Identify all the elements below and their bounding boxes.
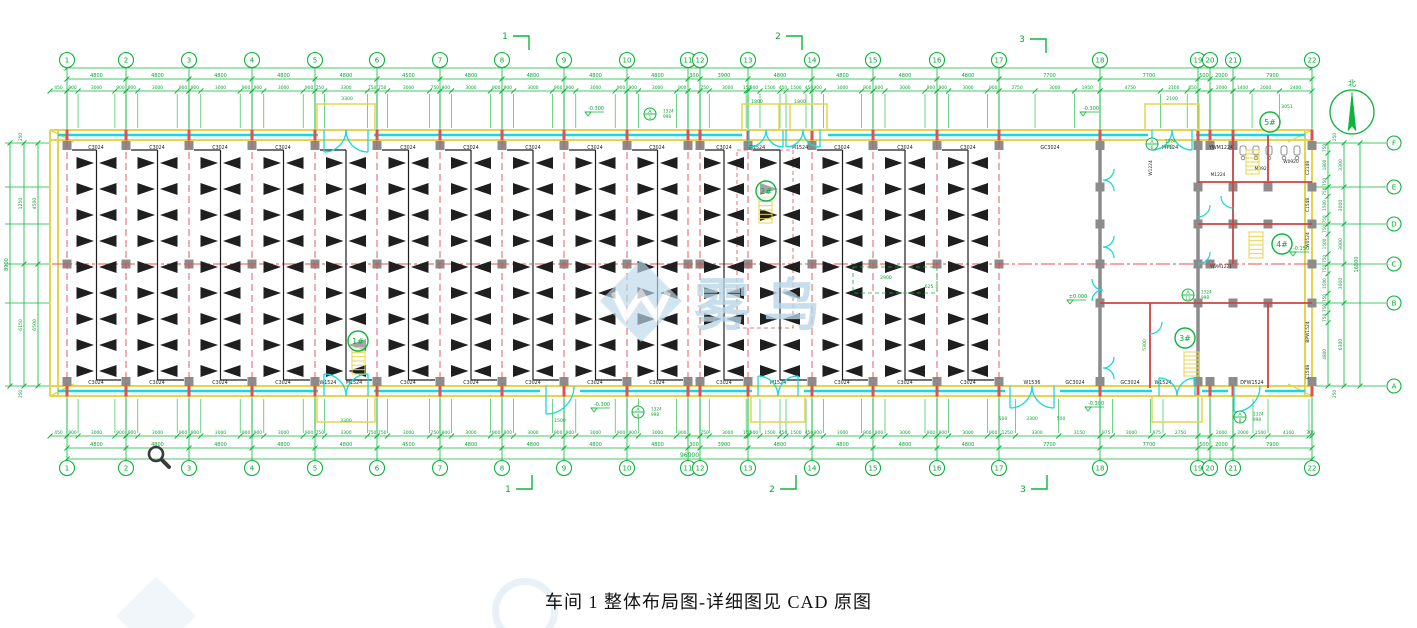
svg-text:4800: 4800: [340, 73, 353, 79]
svg-text:YWM1224: YWM1224: [1208, 145, 1233, 151]
svg-text:C3024: C3024: [212, 380, 228, 386]
svg-text:7900: 7900: [1266, 73, 1279, 79]
svg-text:2000: 2000: [1216, 430, 1227, 436]
svg-text:750: 750: [1322, 178, 1327, 186]
svg-text:500: 500: [1057, 416, 1066, 422]
svg-text:8: 8: [500, 465, 504, 473]
svg-text:7700: 7700: [1143, 73, 1156, 79]
svg-text:3300: 3300: [1338, 159, 1344, 171]
svg-text:1500: 1500: [1322, 200, 1327, 211]
svg-text:-0.300: -0.300: [594, 402, 610, 408]
svg-text:10: 10: [623, 465, 632, 473]
svg-text:900: 900: [305, 85, 314, 91]
svg-text:250: 250: [18, 390, 23, 398]
svg-text:9: 9: [562, 57, 566, 65]
svg-text:7: 7: [438, 57, 442, 65]
svg-text:900: 900: [116, 430, 125, 436]
svg-text:750: 750: [431, 85, 440, 91]
svg-text:900: 900: [750, 430, 759, 436]
svg-text:A: A: [1392, 383, 1397, 391]
magnifier-cursor: [146, 444, 172, 474]
svg-text:1500: 1500: [764, 85, 775, 91]
svg-text:900: 900: [989, 85, 998, 91]
svg-text:3300: 3300: [1026, 416, 1038, 422]
svg-text:2: 2: [775, 32, 781, 42]
svg-text:2: 2: [124, 57, 128, 65]
svg-text:6300: 6300: [1338, 339, 1344, 351]
svg-text:1400: 1400: [1237, 85, 1248, 91]
svg-text:2750: 2750: [1011, 85, 1022, 91]
svg-text:900: 900: [617, 430, 626, 436]
svg-text:C3024: C3024: [960, 380, 976, 386]
svg-text:11: 11: [684, 465, 693, 473]
svg-text:750: 750: [1322, 294, 1327, 302]
svg-text:C3024: C3024: [587, 380, 603, 386]
svg-text:C3024: C3024: [716, 380, 732, 386]
svg-text:4800: 4800: [589, 73, 602, 79]
svg-text:1500: 1500: [1322, 238, 1327, 249]
svg-text:DFW1524: DFW1524: [1240, 380, 1263, 386]
svg-text:300: 300: [689, 73, 699, 79]
svg-text:4800: 4800: [962, 73, 975, 79]
svg-text:3#: 3#: [1179, 334, 1191, 343]
svg-text:3000: 3000: [899, 430, 910, 436]
svg-text:C3024: C3024: [275, 380, 291, 386]
svg-text:750: 750: [1322, 265, 1327, 273]
svg-text:2000: 2000: [1216, 85, 1227, 91]
svg-text:900: 900: [492, 430, 501, 436]
svg-text:13: 13: [744, 465, 753, 473]
red-centerlines: [52, 141, 1310, 385]
svg-text:250: 250: [1332, 390, 1337, 398]
svg-text:900: 900: [989, 430, 998, 436]
svg-text:900: 900: [566, 430, 575, 436]
svg-text:900: 900: [492, 85, 501, 91]
svg-text:900: 900: [617, 85, 626, 91]
svg-text:2: 2: [769, 485, 775, 495]
svg-text:C1548: C1548: [1305, 365, 1311, 379]
svg-text:4800: 4800: [340, 442, 353, 448]
svg-text:8: 8: [1239, 418, 1242, 423]
svg-text:500: 500: [1199, 73, 1209, 79]
svg-text:4800: 4800: [277, 73, 290, 79]
svg-text:900: 900: [191, 430, 200, 436]
svg-text:-0.300: -0.300: [588, 106, 604, 112]
svg-text:2000: 2000: [1215, 73, 1228, 79]
svg-text:450: 450: [54, 85, 63, 91]
svg-text:3000: 3000: [652, 85, 663, 91]
svg-text:900: 900: [179, 85, 188, 91]
svg-text:M1524: M1524: [792, 145, 808, 151]
svg-text:96000: 96000: [680, 452, 699, 459]
svg-text:900: 900: [128, 430, 137, 436]
svg-text:3000: 3000: [278, 85, 289, 91]
svg-text:750: 750: [368, 85, 377, 91]
svg-text:5#: 5#: [1264, 118, 1276, 127]
svg-text:900: 900: [504, 85, 513, 91]
svg-text:750: 750: [1322, 313, 1327, 321]
svg-text:900: 900: [554, 85, 563, 91]
svg-text:4800: 4800: [1322, 349, 1327, 360]
svg-text:900: 900: [814, 430, 823, 436]
svg-text:750: 750: [316, 85, 325, 91]
svg-text:17: 17: [995, 465, 1004, 473]
svg-text:900: 900: [68, 430, 77, 436]
svg-text:13: 13: [744, 57, 753, 65]
svg-text:1: 1: [65, 465, 69, 473]
svg-text:4500: 4500: [402, 73, 415, 79]
svg-text:3000: 3000: [152, 85, 163, 91]
svg-text:998: 998: [1165, 144, 1173, 149]
svg-text:B: B: [1392, 300, 1397, 308]
svg-text:900: 900: [939, 430, 948, 436]
svg-text:4800: 4800: [899, 73, 912, 79]
svg-text:4800: 4800: [651, 73, 664, 79]
svg-text:975: 975: [1153, 430, 1162, 436]
svg-text:4: 4: [250, 465, 255, 473]
drawing-title: 车间 1 整体布局图-详细图见 CAD 原图: [0, 588, 1417, 614]
svg-text:C2148: C2148: [1305, 161, 1311, 175]
svg-text:C: C: [1392, 261, 1397, 269]
svg-text:2400: 2400: [1290, 85, 1301, 91]
svg-text:500: 500: [1199, 442, 1209, 448]
svg-text:E: E: [1392, 184, 1396, 192]
svg-text:900: 900: [875, 430, 884, 436]
svg-text:3000: 3000: [590, 430, 601, 436]
svg-text:14: 14: [808, 465, 817, 473]
svg-text:900: 900: [863, 430, 872, 436]
svg-text:-0.300: -0.300: [1088, 401, 1104, 407]
svg-text:18: 18: [1096, 57, 1105, 65]
svg-text:C3024: C3024: [400, 380, 416, 386]
svg-text:1324: 1324: [663, 109, 674, 114]
svg-text:C3024: C3024: [149, 380, 165, 386]
svg-text:2000: 2000: [1237, 430, 1248, 436]
svg-text:7700: 7700: [1043, 73, 1056, 79]
svg-text:4800: 4800: [151, 73, 164, 79]
svg-text:4800: 4800: [527, 73, 540, 79]
svg-text:250: 250: [1332, 133, 1337, 141]
svg-text:YWM1221: YWM1221: [1209, 264, 1232, 270]
svg-text:900: 900: [566, 85, 575, 91]
svg-text:1#: 1#: [352, 337, 364, 346]
svg-text:3000: 3000: [152, 430, 163, 436]
svg-text:7700: 7700: [1143, 442, 1156, 448]
svg-text:500: 500: [999, 416, 1008, 422]
svg-text:1500: 1500: [764, 430, 775, 436]
svg-text:900: 900: [629, 430, 638, 436]
svg-text:1500: 1500: [554, 418, 566, 424]
svg-text:3000: 3000: [722, 85, 733, 91]
svg-text:4#: 4#: [1276, 240, 1288, 249]
svg-text:625: 625: [925, 284, 934, 290]
svg-text:900: 900: [68, 85, 77, 91]
svg-text:3300: 3300: [340, 430, 351, 436]
svg-text:GC3024: GC3024: [1040, 145, 1059, 151]
svg-text:3000: 3000: [962, 430, 973, 436]
svg-text:19: 19: [1194, 465, 1203, 473]
svg-text:3000: 3000: [722, 430, 733, 436]
svg-text:1: 1: [502, 32, 508, 42]
svg-text:3300: 3300: [341, 96, 353, 102]
svg-text:22: 22: [1308, 57, 1317, 65]
svg-text:±0.000: ±0.000: [1069, 294, 1088, 300]
svg-text:4800: 4800: [527, 442, 540, 448]
svg-text:900: 900: [191, 85, 200, 91]
svg-text:4100: 4100: [1283, 430, 1294, 436]
svg-text:3000: 3000: [527, 85, 538, 91]
svg-text:450: 450: [54, 430, 63, 436]
svg-text:750: 750: [1322, 255, 1327, 263]
svg-text:998: 998: [651, 412, 659, 417]
svg-text:3900: 3900: [718, 442, 731, 448]
cad-drawing-page: 9600048004800480048004800450048004800480…: [0, 0, 1417, 628]
svg-text:750: 750: [378, 430, 387, 436]
svg-text:4800: 4800: [214, 73, 227, 79]
svg-text:2100: 2100: [1168, 85, 1179, 91]
svg-text:4800: 4800: [836, 442, 849, 448]
svg-text:1324: 1324: [651, 407, 662, 412]
svg-text:6: 6: [375, 57, 380, 65]
svg-text:750: 750: [1322, 225, 1327, 233]
svg-text:900: 900: [678, 430, 687, 436]
svg-text:9: 9: [562, 465, 566, 473]
svg-text:4800: 4800: [899, 442, 912, 448]
svg-text:3000: 3000: [91, 85, 102, 91]
svg-text:900: 900: [254, 85, 263, 91]
svg-text:21: 21: [1229, 57, 1238, 65]
svg-text:C3024: C3024: [649, 380, 665, 386]
svg-text:11: 11: [684, 57, 693, 65]
svg-text:4: 4: [250, 57, 255, 65]
svg-text:6: 6: [1151, 145, 1154, 150]
svg-text:900: 900: [927, 85, 936, 91]
svg-text:3000: 3000: [1338, 238, 1344, 250]
svg-text:750: 750: [700, 430, 709, 436]
svg-text:4800: 4800: [90, 442, 103, 448]
floor-plan-svg: 9600048004800480048004800450048004800480…: [0, 0, 1417, 628]
svg-text:20: 20: [1206, 57, 1215, 65]
svg-text:-0.300: -0.300: [1083, 106, 1099, 112]
svg-text:12: 12: [696, 465, 705, 473]
svg-text:6500: 6500: [32, 319, 38, 331]
svg-text:750: 750: [1322, 144, 1327, 152]
svg-text:750: 750: [700, 85, 709, 91]
svg-text:3300: 3300: [340, 85, 351, 91]
svg-text:900: 900: [442, 430, 451, 436]
svg-text:300: 300: [1306, 430, 1315, 436]
svg-text:900: 900: [678, 85, 687, 91]
svg-text:12: 12: [696, 57, 705, 65]
svg-text:900: 900: [116, 85, 125, 91]
svg-text:5: 5: [313, 57, 317, 65]
svg-text:4800: 4800: [465, 442, 478, 448]
svg-text:18: 18: [1096, 465, 1105, 473]
svg-text:3000: 3000: [837, 85, 848, 91]
svg-text:22: 22: [1308, 465, 1317, 473]
svg-text:900: 900: [504, 430, 513, 436]
svg-text:C3024: C3024: [525, 380, 541, 386]
svg-text:900: 900: [128, 85, 137, 91]
svg-text:4800: 4800: [651, 442, 664, 448]
svg-text:15: 15: [869, 465, 878, 473]
svg-text:15: 15: [869, 57, 878, 65]
svg-text:1500: 1500: [790, 430, 801, 436]
svg-text:GC3024: GC3024: [1065, 380, 1084, 386]
svg-text:1950: 1950: [1082, 85, 1093, 91]
svg-text:C3024: C3024: [834, 380, 850, 386]
svg-text:3000: 3000: [899, 85, 910, 91]
svg-text:4800: 4800: [962, 442, 975, 448]
svg-text:8: 8: [500, 57, 504, 65]
svg-text:16: 16: [933, 57, 942, 65]
svg-text:1800: 1800: [1322, 159, 1327, 170]
svg-text:1: 1: [649, 115, 652, 120]
svg-text:3300: 3300: [1031, 430, 1042, 436]
svg-text:3: 3: [187, 57, 191, 65]
svg-text:7700: 7700: [1043, 442, 1056, 448]
svg-text:W1224: W1224: [1148, 160, 1154, 176]
svg-text:GC3024: GC3024: [1120, 380, 1139, 386]
svg-text:北: 北: [1348, 79, 1356, 88]
svg-text:1250: 1250: [1002, 430, 1013, 436]
svg-text:5: 5: [313, 465, 317, 473]
svg-text:10: 10: [623, 57, 632, 65]
svg-text:900: 900: [927, 430, 936, 436]
svg-text:13: 13: [1185, 296, 1191, 301]
svg-text:3000: 3000: [91, 430, 102, 436]
svg-text:1: 1: [505, 485, 511, 495]
svg-text:4: 4: [637, 413, 640, 418]
svg-text:975: 975: [1102, 430, 1111, 436]
svg-text:19: 19: [1194, 57, 1203, 65]
svg-text:4500: 4500: [402, 442, 415, 448]
svg-text:3000: 3000: [527, 430, 538, 436]
svg-text:900: 900: [629, 85, 638, 91]
svg-text:4800: 4800: [589, 442, 602, 448]
svg-text:4800: 4800: [774, 73, 787, 79]
svg-text:850: 850: [1188, 85, 1197, 91]
svg-text:3900: 3900: [718, 73, 731, 79]
svg-text:300: 300: [689, 442, 699, 448]
svg-text:M1224: M1224: [1211, 172, 1226, 178]
svg-text:750: 750: [368, 430, 377, 436]
svg-text:C1548: C1548: [1305, 198, 1311, 212]
svg-text:2: 2: [124, 465, 128, 473]
svg-text:1324: 1324: [1253, 412, 1264, 417]
svg-text:3051: 3051: [1281, 104, 1293, 110]
svg-text:16: 16: [933, 465, 942, 473]
svg-text:4800: 4800: [774, 442, 787, 448]
svg-text:4800: 4800: [836, 73, 849, 79]
svg-text:1250: 1250: [18, 198, 24, 210]
svg-text:3000: 3000: [1338, 200, 1344, 212]
svg-text:17: 17: [995, 57, 1004, 65]
svg-text:750: 750: [1322, 187, 1327, 195]
svg-text:21: 21: [1229, 465, 1238, 473]
svg-text:3: 3: [1020, 485, 1026, 495]
svg-text:3000: 3000: [403, 430, 414, 436]
svg-text:C3024: C3024: [88, 380, 104, 386]
svg-text:3000: 3000: [465, 430, 476, 436]
svg-text:C3024: C3024: [463, 380, 479, 386]
svg-text:998: 998: [663, 114, 671, 119]
svg-text:8900: 8900: [4, 258, 10, 271]
svg-text:M1524: M1524: [770, 380, 786, 386]
svg-text:3: 3: [187, 465, 191, 473]
svg-text:4800: 4800: [214, 442, 227, 448]
svg-text:998: 998: [1253, 417, 1261, 422]
svg-text:1500: 1500: [790, 85, 801, 91]
svg-text:2#: 2#: [760, 187, 772, 196]
dimension-chains: 9600048004800480048004800450048004800480…: [4, 61, 1362, 461]
svg-text:4500: 4500: [32, 198, 38, 210]
svg-text:900: 900: [179, 430, 188, 436]
svg-text:3300: 3300: [340, 418, 352, 424]
svg-text:7: 7: [438, 465, 442, 473]
svg-text:5300: 5300: [1142, 339, 1148, 351]
svg-text:450: 450: [779, 85, 788, 91]
svg-text:1: 1: [65, 57, 69, 65]
svg-text:6: 6: [375, 465, 380, 473]
svg-text:6150: 6150: [18, 319, 24, 331]
svg-text:BPW1524: BPW1524: [1305, 321, 1311, 342]
svg-text:750: 750: [431, 430, 440, 436]
svg-text:4800: 4800: [277, 442, 290, 448]
svg-text:3000: 3000: [1338, 278, 1344, 290]
svg-text:16800: 16800: [1354, 257, 1360, 273]
svg-text:1800: 1800: [751, 99, 763, 105]
svg-text:3000: 3000: [403, 85, 414, 91]
svg-text:W1524: W1524: [320, 380, 337, 386]
svg-text:4750: 4750: [1125, 85, 1136, 91]
svg-text:2750: 2750: [1175, 430, 1186, 436]
svg-text:7900: 7900: [1266, 442, 1279, 448]
svg-text:C3024: C3024: [897, 380, 913, 386]
svg-text:900: 900: [554, 430, 563, 436]
svg-text:750: 750: [316, 430, 325, 436]
svg-text:750: 750: [378, 85, 387, 91]
svg-text:4800: 4800: [465, 73, 478, 79]
svg-text:3: 3: [1019, 35, 1025, 45]
svg-text:1500: 1500: [1322, 278, 1327, 289]
svg-text:14: 14: [808, 57, 817, 65]
svg-text:750: 750: [1322, 215, 1327, 223]
svg-text:D: D: [1391, 221, 1396, 229]
svg-text:900: 900: [875, 85, 884, 91]
svg-text:3000: 3000: [837, 430, 848, 436]
svg-text:1500: 1500: [1255, 430, 1266, 436]
svg-text:2000: 2000: [1215, 442, 1228, 448]
svg-text:3000: 3000: [278, 430, 289, 436]
svg-text:3000: 3000: [1126, 430, 1137, 436]
svg-text:3150: 3150: [1074, 430, 1085, 436]
svg-text:900: 900: [254, 430, 263, 436]
svg-text:3000: 3000: [962, 85, 973, 91]
svg-text:3000: 3000: [215, 85, 226, 91]
svg-text:W1536: W1536: [1024, 380, 1041, 386]
svg-text:900: 900: [242, 85, 251, 91]
svg-text:900: 900: [863, 85, 872, 91]
svg-text:3000: 3000: [215, 430, 226, 436]
svg-text:F: F: [1392, 140, 1396, 148]
svg-text:3000: 3000: [1049, 85, 1060, 91]
svg-text:4800: 4800: [90, 73, 103, 79]
svg-text:750: 750: [1322, 304, 1327, 312]
svg-text:2100: 2100: [1166, 96, 1178, 102]
svg-text:900: 900: [939, 85, 948, 91]
svg-text:900: 900: [442, 85, 451, 91]
